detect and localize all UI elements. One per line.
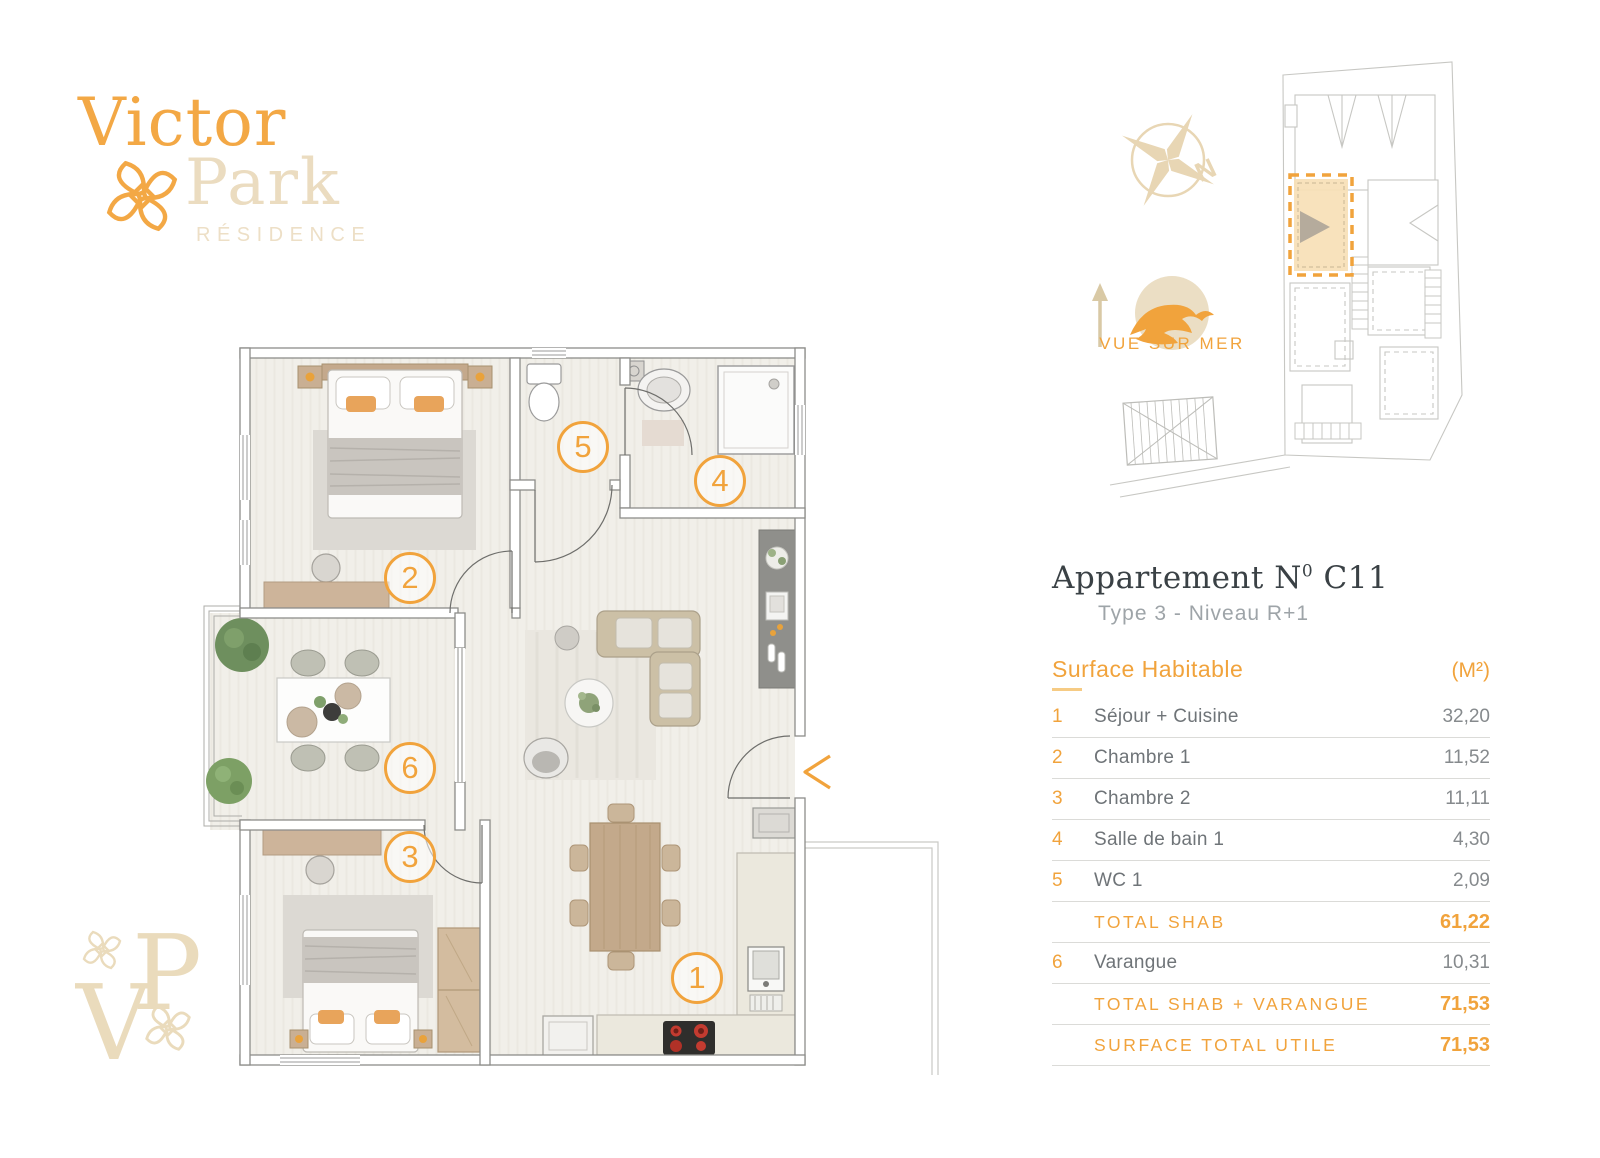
site-hatched-building (1123, 397, 1217, 465)
surface-unit-label: (M²) (1452, 659, 1490, 683)
entrance-arrow-icon (805, 756, 830, 788)
table-row: 5WC 12,09 (1052, 861, 1490, 902)
surface-table-header: Surface Habitable (M²) (1052, 656, 1490, 683)
side-table (555, 626, 579, 650)
apartment-title: Appartement N0 C11 (1052, 560, 1490, 596)
monogram-letter-v: V (76, 962, 151, 1084)
table-row-surface-totale: SURFACE TOTAL UTILE71,53 (1052, 1025, 1490, 1066)
table-row: 2Chambre 111,52 (1052, 738, 1490, 779)
surface-header-label: Surface Habitable (1052, 656, 1243, 683)
table-row: 4Salle de bain 14,30 (1052, 820, 1490, 861)
room-badge-chambre1: 2 (384, 552, 436, 604)
table-row: 3Chambre 211,11 (1052, 779, 1490, 820)
kitchen-wall-counter (759, 530, 795, 688)
apartment-subtitle: Type 3 - Niveau R+1 (1098, 602, 1490, 626)
table-row-total-shab: TOTAL SHAB61,22 (1052, 902, 1490, 943)
bedroom1-bed (290, 930, 432, 1052)
room-badge-bathroom: 4 (694, 455, 746, 507)
brand-word-residence: RÉSIDENCE (196, 224, 371, 247)
siteplan-drawing: N (1080, 55, 1500, 500)
toilet (527, 364, 561, 421)
table-row: 1Séjour + Cuisine32,20 (1052, 697, 1490, 738)
table-row-total-shab-varangue: TOTAL SHAB + VARANGUE71,53 (1052, 984, 1490, 1025)
sea-view-label: VUE SUR MER (1087, 334, 1257, 354)
surface-header-underline (1052, 688, 1082, 691)
brand-pinwheel-icon (102, 156, 182, 236)
bedroom1-wardrobe (438, 928, 480, 1052)
room-badge-chambre2: 3 (384, 831, 436, 883)
site-highlight-unit (1290, 175, 1352, 275)
coffee-table (565, 679, 613, 727)
room-badge-varangue: 6 (384, 742, 436, 794)
room-badge-wc: 5 (557, 421, 609, 473)
compass-icon (1098, 90, 1239, 231)
table-row: 6Varangue10,31 (1052, 943, 1490, 984)
armchair (524, 738, 568, 778)
monogram-pinwheel-icon-bottom (142, 1002, 194, 1054)
info-panel: Appartement N0 C11 Type 3 - Niveau R+1 S… (1052, 560, 1490, 1066)
room-badge-living: 1 (671, 952, 723, 1004)
apartment-number: N0 C11 (1274, 560, 1388, 596)
brand-word-park: Park (185, 146, 341, 220)
site-stairs (1295, 257, 1441, 439)
exterior-terrace-outline (805, 842, 938, 1075)
cooktop (663, 1021, 715, 1055)
surface-table: 1Séjour + Cuisine32,20 2Chambre 111,52 3… (1052, 697, 1490, 1066)
